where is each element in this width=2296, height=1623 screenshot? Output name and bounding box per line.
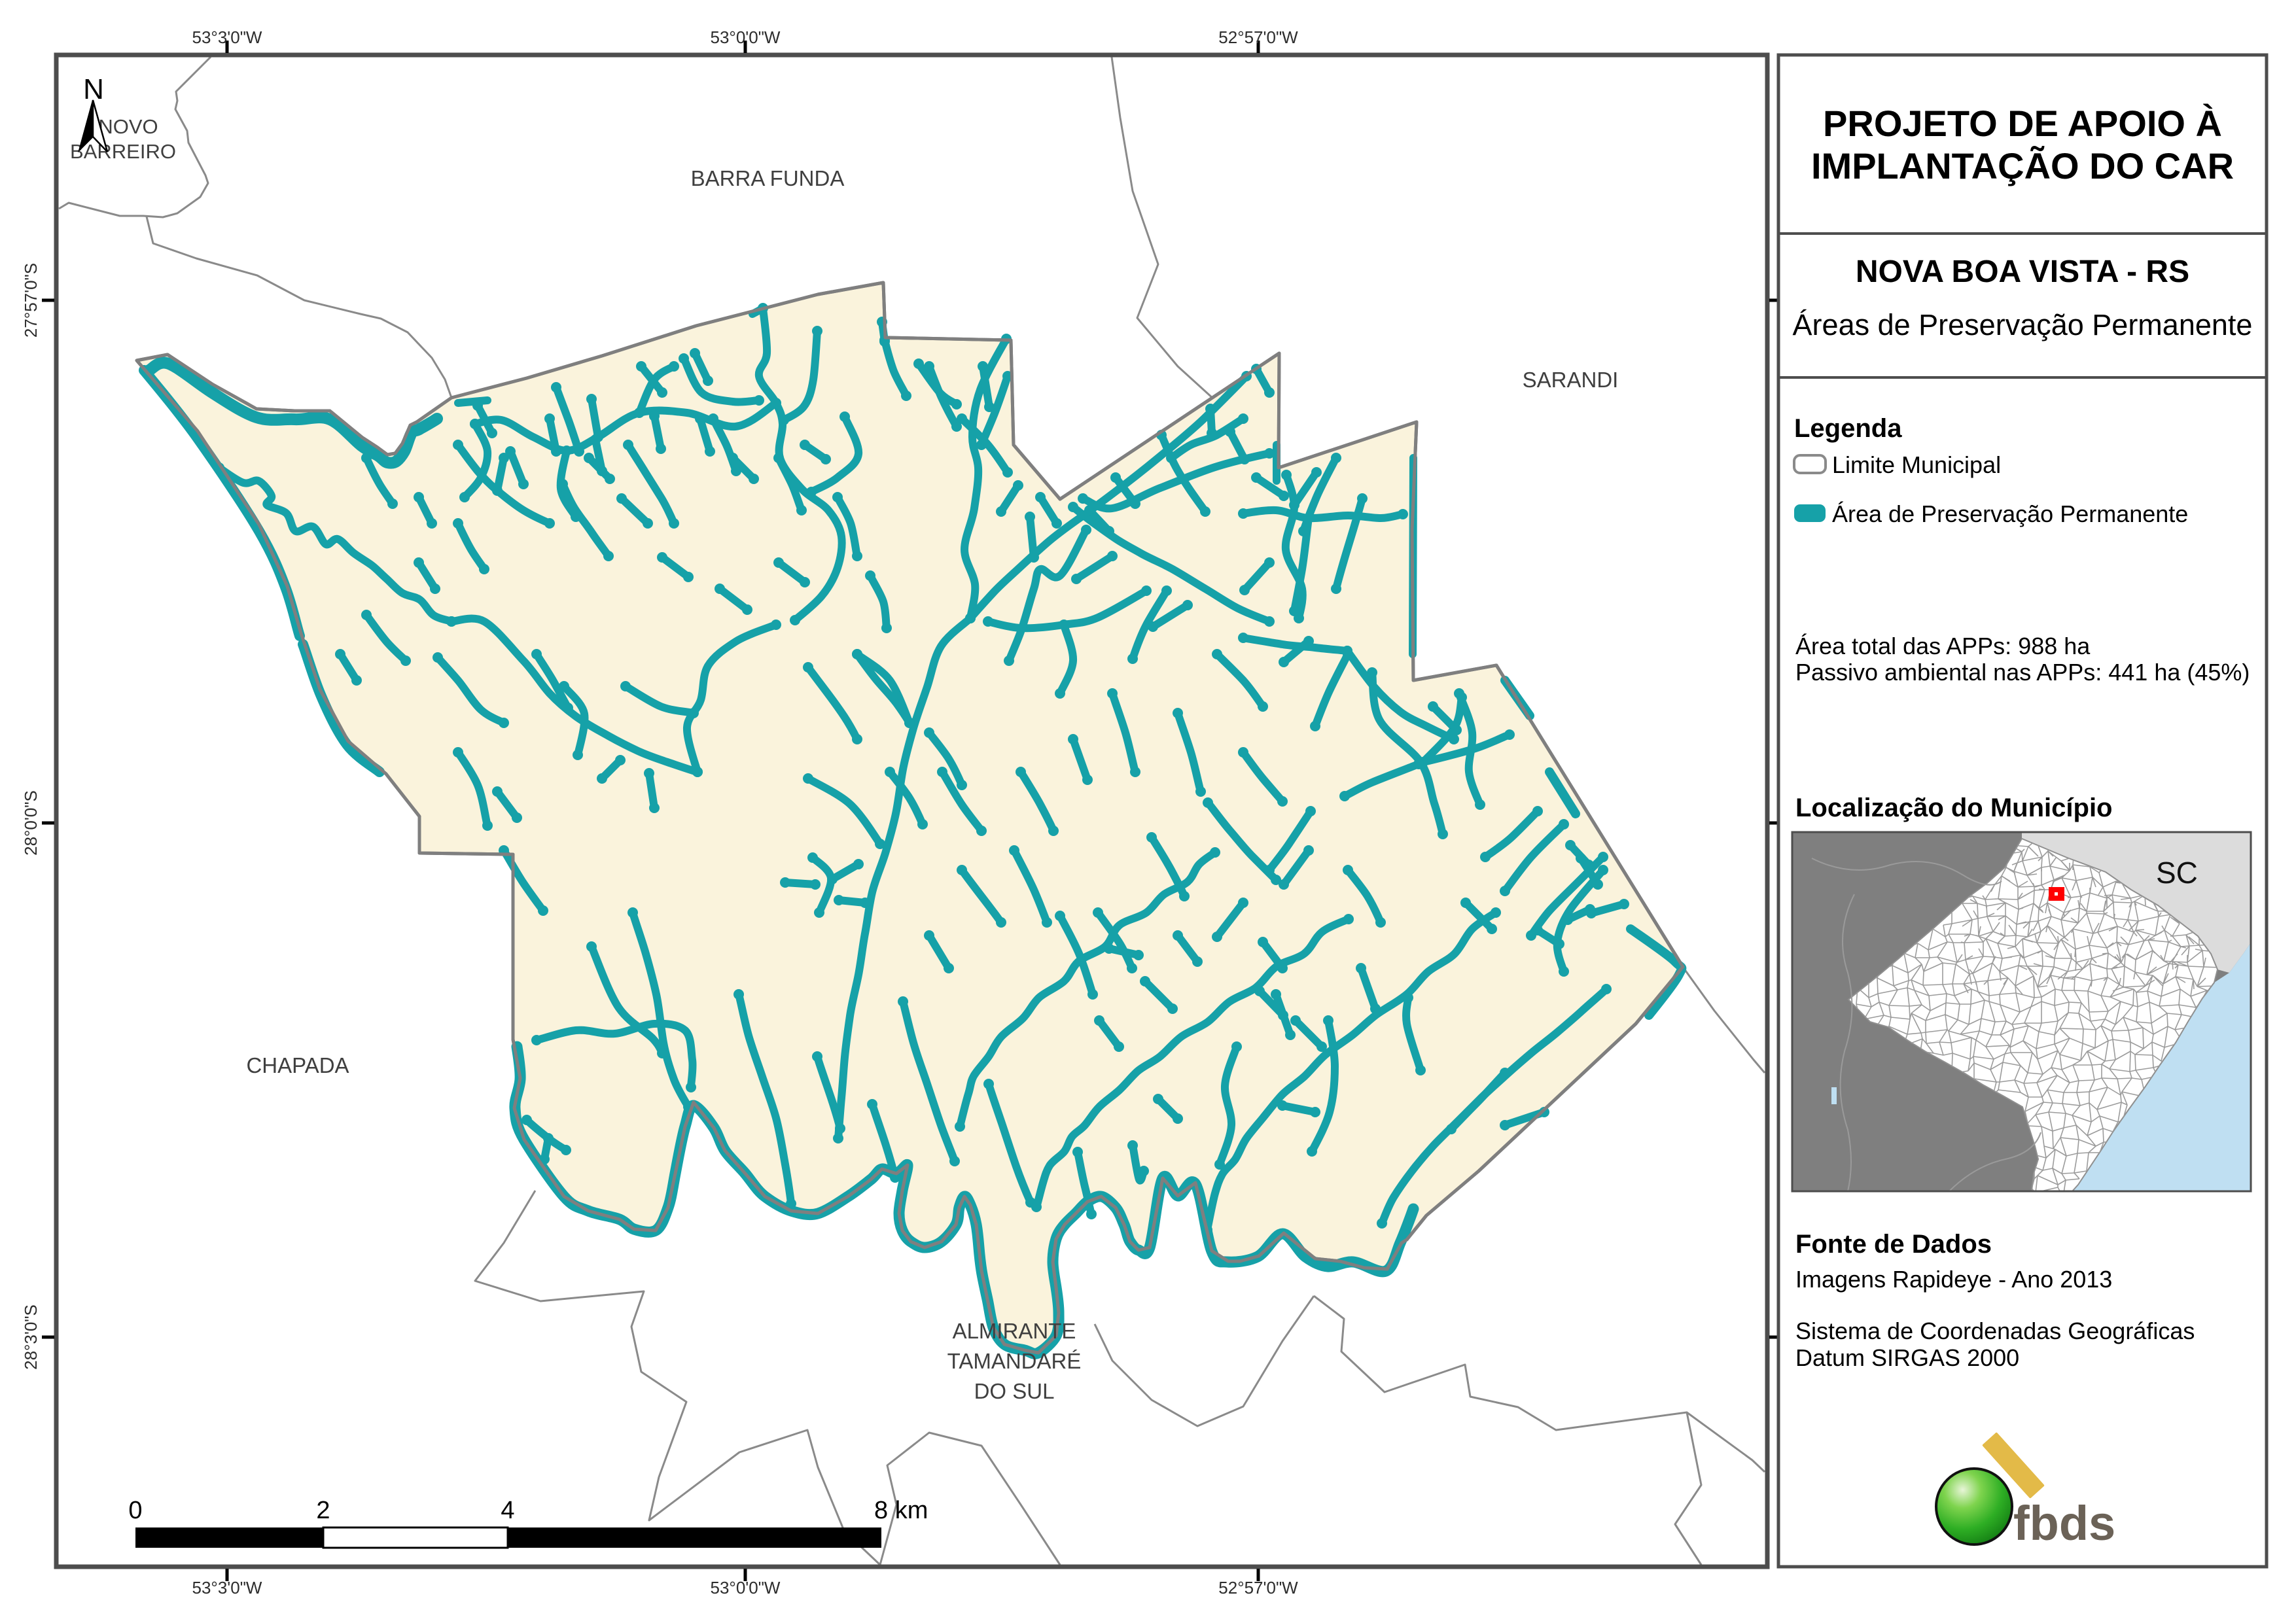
svg-text:2: 2	[316, 1497, 330, 1524]
svg-text:28°3'0"S: 28°3'0"S	[21, 1304, 41, 1370]
svg-text:Área de Preservação Permanente: Área de Preservação Permanente	[1832, 500, 2188, 527]
svg-text:Passivo ambiental nas APPs: 44: Passivo ambiental nas APPs: 441 ha (45%)	[1795, 659, 2250, 686]
svg-text:Localização do Município: Localização do Município	[1795, 794, 2113, 822]
svg-text:CHAPADA: CHAPADA	[246, 1053, 349, 1077]
svg-text:Áreas de Preservação Permanent: Áreas de Preservação Permanente	[1793, 308, 2253, 341]
svg-text:8 km: 8 km	[874, 1497, 928, 1524]
svg-text:PROJETO DE APOIO À: PROJETO DE APOIO À	[1823, 103, 2222, 144]
svg-text:28°0'0"S: 28°0'0"S	[21, 790, 41, 856]
svg-text:53°0'0"W: 53°0'0"W	[711, 27, 781, 47]
svg-text:52°57'0"W: 52°57'0"W	[1218, 27, 1298, 47]
svg-text:TAMANDARÉ: TAMANDARÉ	[947, 1349, 1082, 1373]
svg-text:BARRA FUNDA: BARRA FUNDA	[691, 166, 845, 190]
svg-text:53°0'0"W: 53°0'0"W	[711, 1578, 781, 1597]
svg-text:27°57'0"S: 27°57'0"S	[21, 263, 41, 338]
svg-text:Imagens Rapideye - Ano 2013: Imagens Rapideye - Ano 2013	[1795, 1266, 2112, 1293]
svg-text:SC: SC	[2156, 856, 2198, 890]
svg-text:Legenda: Legenda	[1794, 414, 1902, 443]
svg-text:IMPLANTAÇÃO DO CAR: IMPLANTAÇÃO DO CAR	[1811, 145, 2234, 186]
svg-text:Sistema de Coordenadas Geográf: Sistema de Coordenadas Geográficas	[1795, 1318, 2195, 1344]
svg-text:NOVA BOA VISTA - RS: NOVA BOA VISTA - RS	[1856, 254, 2189, 289]
svg-text:52°57'0"W: 52°57'0"W	[1218, 1578, 1298, 1597]
svg-text:Fonte de Dados: Fonte de Dados	[1795, 1230, 1992, 1259]
svg-text:53°3'0"W: 53°3'0"W	[192, 1578, 262, 1597]
svg-text:DO SUL: DO SUL	[974, 1379, 1055, 1403]
svg-text:ALMIRANTE: ALMIRANTE	[953, 1319, 1076, 1343]
svg-text:Área total das APPs: 988 ha: Área total das APPs: 988 ha	[1795, 633, 2091, 659]
svg-text:fbds: fbds	[2013, 1496, 2115, 1550]
svg-text:4: 4	[501, 1497, 514, 1524]
svg-text:NOVO: NOVO	[98, 115, 158, 138]
svg-text:0: 0	[128, 1497, 142, 1524]
svg-text:53°3'0"W: 53°3'0"W	[192, 27, 262, 47]
svg-text:Datum SIRGAS 2000: Datum SIRGAS 2000	[1795, 1344, 2019, 1371]
svg-text:Limite Municipal: Limite Municipal	[1832, 451, 2001, 478]
svg-text:SARANDI: SARANDI	[1523, 368, 1619, 392]
